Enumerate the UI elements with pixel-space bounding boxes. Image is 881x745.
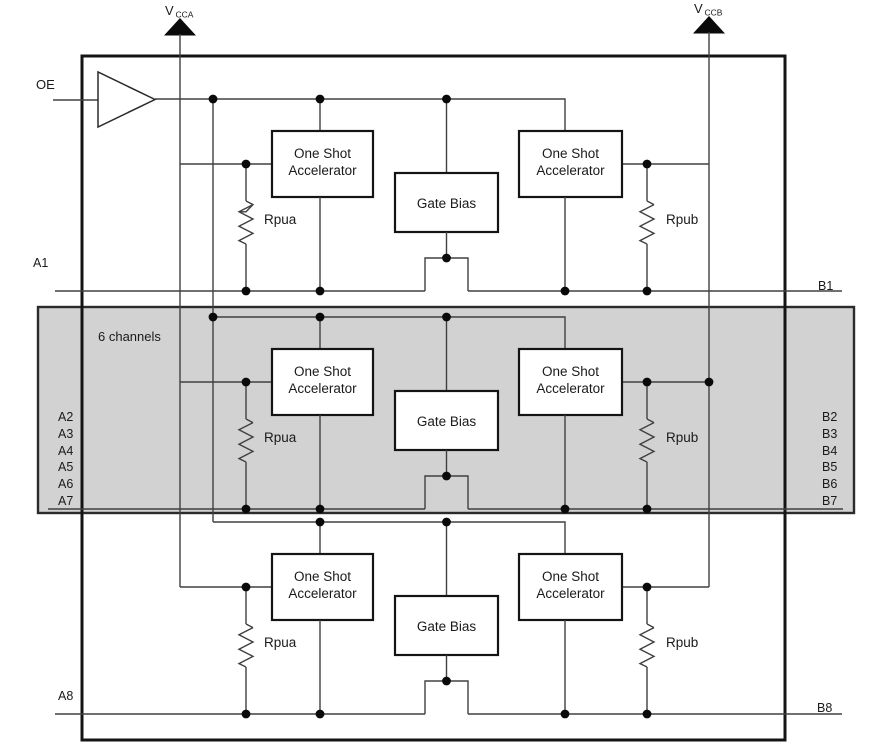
junction-dot <box>316 313 325 322</box>
junction-dot <box>209 95 218 104</box>
ch8-resistor-rpua-icon <box>239 587 253 714</box>
ch8-resistor-rpub-icon <box>640 587 654 714</box>
junction-dot <box>643 710 652 719</box>
junction-dot <box>316 518 325 527</box>
ch1-resistor-rpub-icon <box>640 164 654 291</box>
ch8-oe-rail-wire <box>213 522 565 554</box>
ch1-left-oneshot-label-line1: One Shot <box>294 146 351 161</box>
pin-label-a4: A4 <box>58 444 73 458</box>
oe-buffer-icon <box>98 72 155 127</box>
junction-dot <box>643 505 652 514</box>
junction-dot <box>316 287 325 296</box>
vccb-arrow-icon <box>693 16 725 34</box>
ch1-left-oneshot-label-line2: Accelerator <box>288 163 357 178</box>
pin-label-b6: B6 <box>822 477 837 491</box>
pin-label-oe: OE <box>36 77 55 92</box>
junction-dot <box>643 287 652 296</box>
junction-dot <box>316 505 325 514</box>
junction-dot <box>561 710 570 719</box>
pin-label-a2: A2 <box>58 410 73 424</box>
ch2-left-oneshot-label-line1: One Shot <box>294 364 351 379</box>
ch8-left-oneshot-label-line1: One Shot <box>294 569 351 584</box>
ch8-rpua-label: Rpua <box>264 635 297 650</box>
ch8-left-oneshot-label-line2: Accelerator <box>288 586 357 601</box>
junction-dot <box>316 95 325 104</box>
ch1-rpub-label: Rpub <box>666 212 698 227</box>
pin-label-b2: B2 <box>822 410 837 424</box>
vccb-label-subscript: CCB <box>705 8 723 18</box>
junction-dot <box>442 677 451 686</box>
channel-8: One Shot Accelerator One Shot Accelerato… <box>55 518 842 719</box>
junction-dot <box>316 710 325 719</box>
ch2-rpua-label: Rpua <box>264 430 297 445</box>
vccb-label: V <box>694 1 703 16</box>
junction-dot <box>442 472 451 481</box>
pin-label-a3: A3 <box>58 427 73 441</box>
ch8-gate-bias-label: Gate Bias <box>417 619 477 634</box>
pin-label-b5: B5 <box>822 460 837 474</box>
junction-dot <box>643 583 652 592</box>
junction-dot <box>643 378 652 387</box>
ch1-right-oneshot-label-line2: Accelerator <box>536 163 605 178</box>
ch1-resistor-rpua-icon <box>239 164 253 291</box>
junction-dot <box>209 313 218 322</box>
ch2-gate-bias-label: Gate Bias <box>417 414 477 429</box>
ch1-pass-fet-hump <box>425 258 468 291</box>
pin-label-b7: B7 <box>822 494 837 508</box>
junction-dot <box>442 254 451 263</box>
junction-dot <box>442 518 451 527</box>
pin-label-a6: A6 <box>58 477 73 491</box>
junction-dot <box>442 313 451 322</box>
vcca-arrow-icon <box>164 18 196 36</box>
junction-dot <box>242 287 251 296</box>
ch2-right-oneshot-label-line1: One Shot <box>542 364 599 379</box>
ch2-left-oneshot-label-line2: Accelerator <box>288 381 357 396</box>
junction-dot <box>705 378 714 387</box>
pin-label-b8: B8 <box>817 701 832 715</box>
ch8-rpub-label: Rpub <box>666 635 698 650</box>
ch1-right-oneshot-label-line1: One Shot <box>542 146 599 161</box>
ch1-gate-bias-label: Gate Bias <box>417 196 477 211</box>
junction-dot <box>561 287 570 296</box>
junction-dot <box>242 710 251 719</box>
vcca-label-subscript: CCA <box>176 10 194 20</box>
ch8-right-oneshot-label-line1: One Shot <box>542 569 599 584</box>
vcca-label: V <box>165 3 174 18</box>
pin-label-a5: A5 <box>58 460 73 474</box>
junction-dot <box>242 583 251 592</box>
ch2-right-oneshot-label-line2: Accelerator <box>536 381 605 396</box>
diagram-canvas: V CCA V CCB OE One Shot Accelerator One … <box>0 0 881 745</box>
pin-label-b1: B1 <box>818 279 833 293</box>
ch1-oe-rail-wire <box>155 99 565 131</box>
junction-dot <box>242 160 251 169</box>
junction-dot <box>442 95 451 104</box>
six-channels-label: 6 channels <box>98 329 161 344</box>
pin-label-b3: B3 <box>822 427 837 441</box>
pin-label-a7: A7 <box>58 494 73 508</box>
pin-label-a8: A8 <box>58 689 73 703</box>
channel-1: One Shot Accelerator One Shot Accelerato… <box>33 95 842 296</box>
ch1-rpua-label: Rpua <box>264 212 297 227</box>
block-diagram: V CCA V CCB OE One Shot Accelerator One … <box>0 0 881 745</box>
pin-label-b4: B4 <box>822 444 837 458</box>
junction-dot <box>242 378 251 387</box>
ch8-pass-fet-hump <box>425 681 468 714</box>
junction-dot <box>643 160 652 169</box>
pin-label-a1: A1 <box>33 256 48 270</box>
junction-dot <box>242 505 251 514</box>
ch2-rpub-label: Rpub <box>666 430 698 445</box>
ch8-right-oneshot-label-line2: Accelerator <box>536 586 605 601</box>
junction-dot <box>561 505 570 514</box>
